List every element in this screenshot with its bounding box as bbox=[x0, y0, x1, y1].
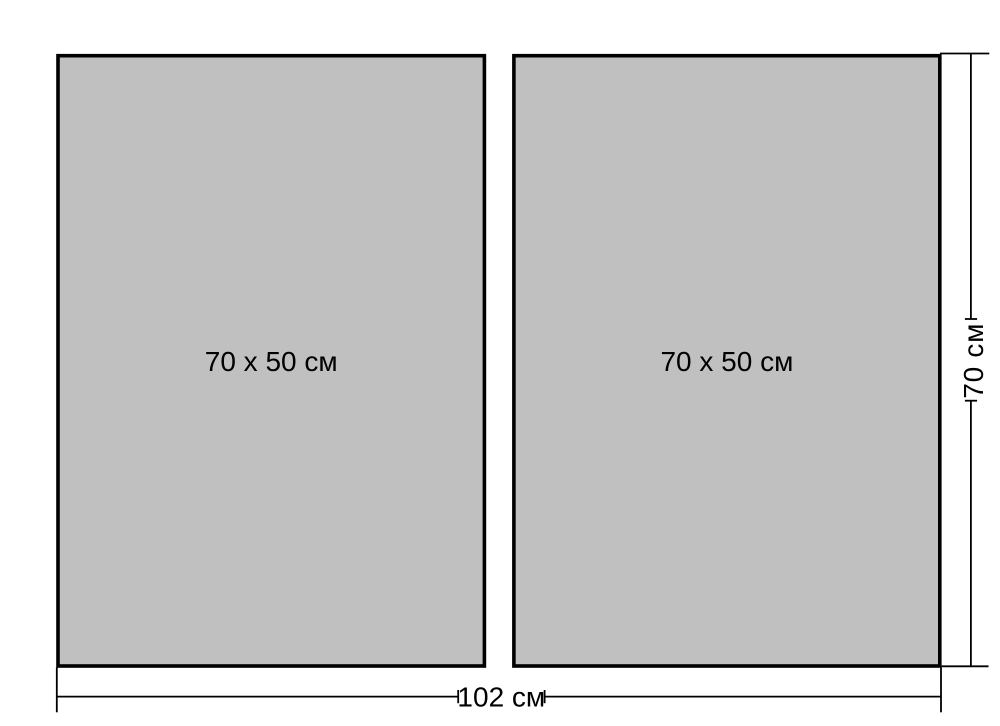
svg-text:70 x 50 см: 70 x 50 см bbox=[205, 346, 338, 377]
svg-text:70 см: 70 см bbox=[958, 323, 989, 399]
svg-text:70 x 50 см: 70 x 50 см bbox=[660, 346, 793, 377]
svg-text:102 см: 102 см bbox=[457, 681, 545, 712]
